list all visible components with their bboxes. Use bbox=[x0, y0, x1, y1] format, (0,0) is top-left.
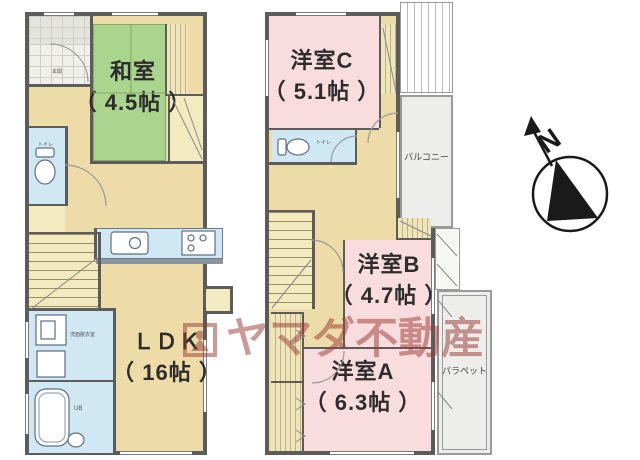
room-size: （ 16帖 ） bbox=[97, 358, 237, 389]
watermark-logo-icon bbox=[182, 322, 218, 358]
balcony-label: バルコニー bbox=[401, 150, 452, 163]
room-name: 和室 bbox=[63, 57, 203, 88]
bathroom-1f bbox=[29, 382, 113, 453]
stairs-2f bbox=[269, 212, 312, 309]
wall-segment bbox=[312, 212, 315, 309]
window-marker bbox=[44, 12, 74, 16]
wall-segment bbox=[355, 130, 357, 162]
wall-segment bbox=[269, 210, 315, 212]
wall-segment bbox=[29, 126, 68, 128]
closet-yoshitsu-b bbox=[398, 218, 431, 238]
floorplan-canvas: 和室 （ 4.5帖 ） ＬＤＫ （ 16帖 ） 洋室C （ 5.1帖 ） 洋室B… bbox=[0, 0, 640, 460]
bath-label: UB bbox=[74, 406, 82, 412]
wall-segment bbox=[29, 232, 98, 234]
room-name: 洋室C bbox=[252, 46, 392, 77]
wall-segment bbox=[271, 312, 304, 314]
room-label-yoshitsu-c: 洋室C （ 5.1帖 ） bbox=[252, 46, 392, 108]
watermark: ヤマダ不動産 bbox=[182, 318, 484, 361]
wall-segment bbox=[91, 161, 203, 164]
room-label-yoshitsu-b: 洋室B （ 4.7帖 ） bbox=[319, 250, 459, 312]
entrance-porch bbox=[29, 16, 91, 44]
closet-under-stairs bbox=[29, 206, 65, 232]
room-name: 洋室B bbox=[319, 250, 459, 281]
room-label-yoshitsu-a: 洋室A （ 6.3帖 ） bbox=[293, 357, 433, 419]
toilet-2f-label: トイレ bbox=[316, 141, 331, 146]
wall-segment bbox=[398, 238, 431, 240]
toilet-1f-label: トイレ bbox=[38, 143, 53, 148]
toilet-2f bbox=[272, 130, 355, 162]
room-label-washitsu: 和室 （ 4.5帖 ） bbox=[63, 57, 203, 119]
roof-hatch bbox=[400, 2, 453, 93]
room-size: （ 4.7帖 ） bbox=[319, 281, 459, 312]
window-marker bbox=[112, 12, 158, 16]
washroom-label: 洗面脱衣室 bbox=[70, 333, 95, 338]
room-size: （ 6.3帖 ） bbox=[293, 388, 433, 419]
side-storage-1f bbox=[203, 286, 233, 314]
wall-segment bbox=[98, 232, 101, 310]
toilet-1f bbox=[29, 128, 65, 204]
entrance-label: 玄関 bbox=[52, 70, 62, 75]
window-marker bbox=[120, 451, 192, 455]
window-marker bbox=[330, 451, 414, 455]
wall-segment bbox=[94, 228, 97, 260]
window-marker bbox=[296, 12, 346, 16]
stairs-1f bbox=[29, 234, 98, 308]
wall-segment bbox=[65, 128, 68, 206]
compass-needle bbox=[547, 160, 598, 221]
window-marker bbox=[396, 132, 400, 198]
window-marker bbox=[25, 322, 29, 358]
kitchen-counter-edge bbox=[96, 259, 223, 264]
parapet-label: パラペット bbox=[438, 364, 491, 377]
watermark-text: ヤマダ不動産 bbox=[226, 318, 484, 361]
wall-segment bbox=[29, 204, 68, 206]
wall-segment bbox=[269, 128, 379, 130]
kitchen-counter bbox=[96, 228, 223, 259]
compass: N bbox=[518, 102, 628, 242]
wall-segment bbox=[29, 308, 113, 311]
window-marker bbox=[25, 394, 29, 434]
room-size: （ 4.5帖 ） bbox=[63, 88, 203, 119]
wall-segment bbox=[269, 162, 357, 165]
room-size: （ 5.1帖 ） bbox=[252, 77, 392, 108]
